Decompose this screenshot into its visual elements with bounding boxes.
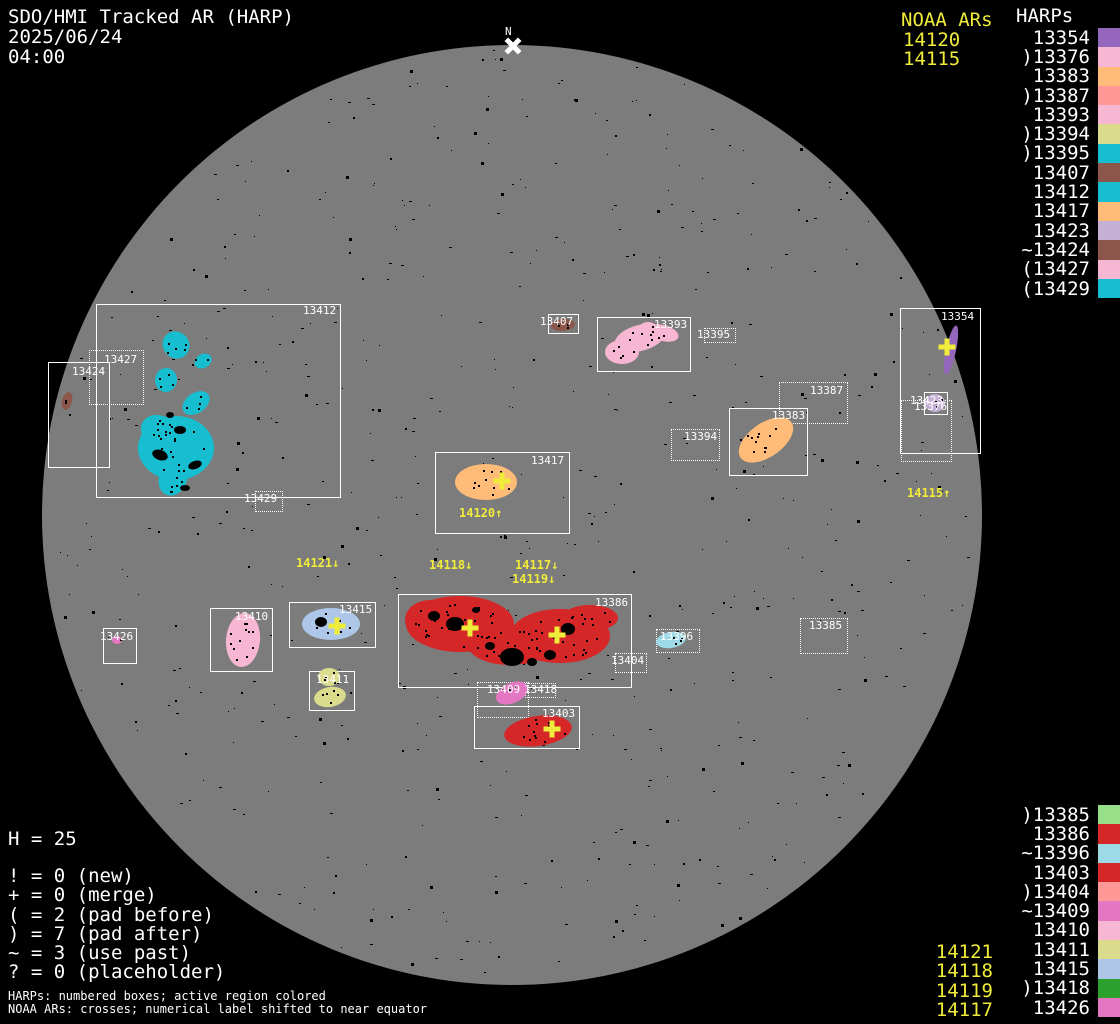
harp-label-13394: 13394 bbox=[684, 431, 717, 442]
harp-color-swatch bbox=[1098, 921, 1120, 940]
harp-list-item: 13383 bbox=[994, 67, 1120, 86]
harp-color-swatch bbox=[1098, 86, 1120, 105]
harp-label-13418: 13418 bbox=[524, 684, 557, 695]
harp-list-item: )13385 bbox=[994, 805, 1120, 824]
harp-list-item: )13418 bbox=[994, 979, 1120, 998]
harp-color-swatch bbox=[1098, 882, 1120, 901]
harp-color-swatch bbox=[1098, 279, 1120, 298]
harp-list-item: )13395 bbox=[994, 144, 1120, 163]
harp-label-13411: 13411 bbox=[316, 674, 349, 685]
harp-label-13383: 13383 bbox=[772, 410, 805, 421]
harp-color-swatch bbox=[1098, 998, 1120, 1017]
harp-label-13387: 13387 bbox=[810, 385, 843, 396]
harp-color-swatch bbox=[1098, 805, 1120, 824]
harp-label-13427: 13427 bbox=[104, 354, 137, 365]
noaa-shifted-label: 14118↓ bbox=[429, 559, 472, 571]
harp-label-13386: 13386 bbox=[595, 597, 628, 608]
harp-color-swatch bbox=[1098, 959, 1120, 978]
noaa-ar-number: 14115 bbox=[903, 50, 960, 69]
sunspot bbox=[527, 658, 537, 666]
noaa-cross-icon bbox=[329, 618, 346, 635]
harp-color-swatch bbox=[1098, 901, 1120, 920]
harp-list-item: )13394 bbox=[994, 124, 1120, 143]
harp-list-item: 13354 bbox=[994, 28, 1120, 47]
harp-label-13415: 13415 bbox=[339, 604, 372, 615]
noaa-ar-number: 14118 bbox=[933, 960, 993, 979]
legend-item: ? = 0 (placeholder) bbox=[8, 963, 225, 982]
legend: ! = 0 (new)+ = 0 (merge)( = 2 (pad befor… bbox=[8, 867, 225, 983]
harp-list-item: )13387 bbox=[994, 86, 1120, 105]
harp-label-13426: 13426 bbox=[100, 631, 133, 642]
harp-color-swatch bbox=[1098, 824, 1120, 843]
footnote-noaa: NOAA ARs: crosses; numerical label shift… bbox=[8, 1003, 427, 1016]
harp-list-item: (13429 bbox=[994, 279, 1120, 298]
harp-list-item: 13410 bbox=[994, 921, 1120, 940]
harp-label-13396: 13396 bbox=[660, 631, 693, 642]
harp-color-swatch bbox=[1098, 844, 1120, 863]
harp-color-swatch bbox=[1098, 105, 1120, 124]
harp-color-swatch bbox=[1098, 221, 1120, 240]
app-title: SDO/HMI Tracked AR (HARP) bbox=[8, 8, 294, 27]
harp-color-swatch bbox=[1098, 940, 1120, 959]
noaa-shifted-label: 14115↑ bbox=[907, 487, 950, 499]
harp-list-item: 13393 bbox=[994, 105, 1120, 124]
harp-color-swatch bbox=[1098, 863, 1120, 882]
harp-label-13395: 13395 bbox=[697, 329, 730, 340]
harp-list-item: )13376 bbox=[994, 47, 1120, 66]
harp-label-13429: 13429 bbox=[244, 493, 277, 504]
noaa-shifted-label: 14117↓ bbox=[515, 559, 558, 571]
harp-label-13410: 13410 bbox=[235, 611, 268, 622]
harp-label-13417: 13417 bbox=[531, 455, 564, 466]
harp-tracker-canvas: SDO/HMI Tracked AR (HARP) 2025/06/24 04:… bbox=[0, 0, 1120, 1024]
harp-list-item: 13403 bbox=[994, 863, 1120, 882]
harp-list-item: 13426 bbox=[994, 998, 1120, 1017]
harp-color-swatch bbox=[1098, 163, 1120, 182]
harp-list-top: 13354)1337613383)1338713393)13394)133951… bbox=[994, 28, 1120, 298]
harp-list-item: 13417 bbox=[994, 202, 1120, 221]
harp-label-13407: 13407 bbox=[540, 316, 573, 327]
sunspot bbox=[485, 642, 495, 650]
sunspot bbox=[315, 617, 327, 627]
harp-color-swatch bbox=[1098, 979, 1120, 998]
noaa-cross-icon bbox=[939, 339, 956, 356]
harp-label-13403: 13403 bbox=[542, 708, 575, 719]
harp-list-item: (13427 bbox=[994, 260, 1120, 279]
harp-color-swatch bbox=[1098, 260, 1120, 279]
harp-color-swatch bbox=[1098, 144, 1120, 163]
harp-color-swatch bbox=[1098, 28, 1120, 47]
noaa-shifted-label: 14121↓ bbox=[296, 557, 339, 569]
noaa-list-bottom: 14121141181411914117 bbox=[933, 941, 993, 1018]
harp-number: 13426 bbox=[994, 997, 1090, 1019]
harp-list-item: 13423 bbox=[994, 221, 1120, 240]
harp-list-item: ~13424 bbox=[994, 240, 1120, 259]
harp-color-swatch bbox=[1098, 67, 1120, 86]
harps-header: HARPs bbox=[1016, 7, 1073, 26]
sunspot bbox=[174, 426, 186, 434]
harp-label-13412: 13412 bbox=[303, 305, 336, 316]
noaa-cross-icon bbox=[544, 721, 561, 738]
noaa-ar-number: 14121 bbox=[933, 941, 993, 960]
noaa-cross-icon bbox=[494, 473, 511, 490]
sunspot bbox=[180, 485, 190, 491]
noaa-cross-icon bbox=[549, 627, 566, 644]
harp-count: H = 25 bbox=[8, 830, 77, 849]
harp-label-13385: 13385 bbox=[809, 620, 842, 631]
noaa-ar-number: 14119 bbox=[933, 980, 993, 999]
harp-number: (13429 bbox=[994, 278, 1090, 300]
noaa-shifted-label: 14119↓ bbox=[512, 573, 555, 585]
harp-list-item: ~13409 bbox=[994, 901, 1120, 920]
harp-list-item: 13412 bbox=[994, 182, 1120, 201]
harp-list-item: 13386 bbox=[994, 824, 1120, 843]
harp-list-bottom: )1338513386~1339613403)13404~13409134101… bbox=[994, 805, 1120, 1017]
time-label: 04:00 bbox=[8, 48, 65, 67]
harp-list-item: 13411 bbox=[994, 940, 1120, 959]
harp-label-13424: 13424 bbox=[72, 366, 105, 377]
legend-item: ( = 2 (pad before) bbox=[8, 906, 225, 925]
harp-label-13354: 13354 bbox=[941, 311, 974, 322]
harp-color-swatch bbox=[1098, 240, 1120, 259]
harp-color-swatch bbox=[1098, 182, 1120, 201]
noaa-shifted-label: 14120↑ bbox=[459, 507, 502, 519]
date-label: 2025/06/24 bbox=[8, 28, 122, 47]
harp-list-item: ~13396 bbox=[994, 844, 1120, 863]
harp-list-item: 13407 bbox=[994, 163, 1120, 182]
noaa-ars-header: NOAA ARs bbox=[901, 11, 993, 30]
harp-list-item: 13415 bbox=[994, 959, 1120, 978]
harp-label-13376: 13376 bbox=[914, 401, 947, 412]
north-x-icon bbox=[504, 37, 523, 56]
legend-item: + = 0 (merge) bbox=[8, 886, 225, 905]
harp-color-swatch bbox=[1098, 47, 1120, 66]
harp-label-13404: 13404 bbox=[611, 655, 644, 666]
harp-color-swatch bbox=[1098, 124, 1120, 143]
sunspot bbox=[166, 412, 174, 418]
harp-color-swatch bbox=[1098, 202, 1120, 221]
sunspot bbox=[544, 650, 556, 660]
harp-label-13409: 13409 bbox=[487, 684, 520, 695]
noaa-cross-icon bbox=[462, 620, 479, 637]
noaa-ar-number: 14117 bbox=[933, 999, 993, 1018]
harp-label-13393: 13393 bbox=[654, 319, 687, 330]
harp-list-item: )13404 bbox=[994, 882, 1120, 901]
sunspot bbox=[500, 648, 524, 666]
